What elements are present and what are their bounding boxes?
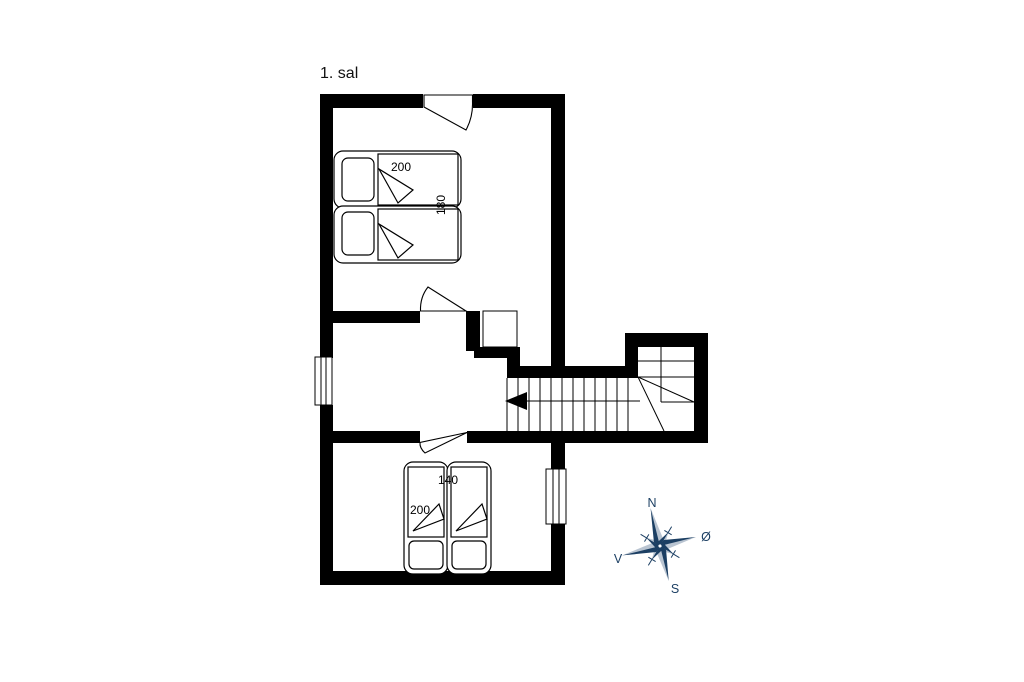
pillow [342, 158, 374, 201]
wall-stair-top [509, 366, 633, 378]
twin-bed-length-label: 200 [410, 503, 430, 517]
wall-bottomroom-right-upper [551, 443, 565, 471]
wall-bottomroom-right-lower [551, 523, 565, 585]
pillow [409, 541, 443, 569]
double-bed-width-label: 180 [434, 195, 448, 215]
pillow [342, 212, 374, 255]
double-bed-length-label: 200 [391, 160, 411, 174]
compass-label-north: N [647, 496, 656, 510]
window-right [546, 469, 566, 524]
window-left-frame [315, 357, 332, 405]
compass-label-west: V [614, 552, 623, 566]
window-right-frame [546, 469, 566, 524]
compass-label-south: S [671, 582, 679, 596]
wall-closet-bottom [474, 347, 507, 358]
compass-label-east: Ø [701, 530, 711, 544]
closet [483, 311, 517, 347]
wall-toproom-bottom [320, 311, 420, 323]
wall-toproom-right [551, 94, 565, 367]
pillow [452, 541, 486, 569]
twin-bed-width-label: 140 [438, 473, 458, 487]
wall-bottomroom-top [320, 431, 420, 443]
wall-stub [466, 311, 480, 351]
wall-stair-bottom [467, 431, 708, 443]
floor-plan-svg: 1. sal [0, 0, 1024, 682]
floor-title: 1. sal [320, 65, 358, 82]
wall-right [694, 333, 708, 443]
floorplan-page: 1. sal [0, 0, 1024, 682]
window-left [315, 357, 332, 405]
